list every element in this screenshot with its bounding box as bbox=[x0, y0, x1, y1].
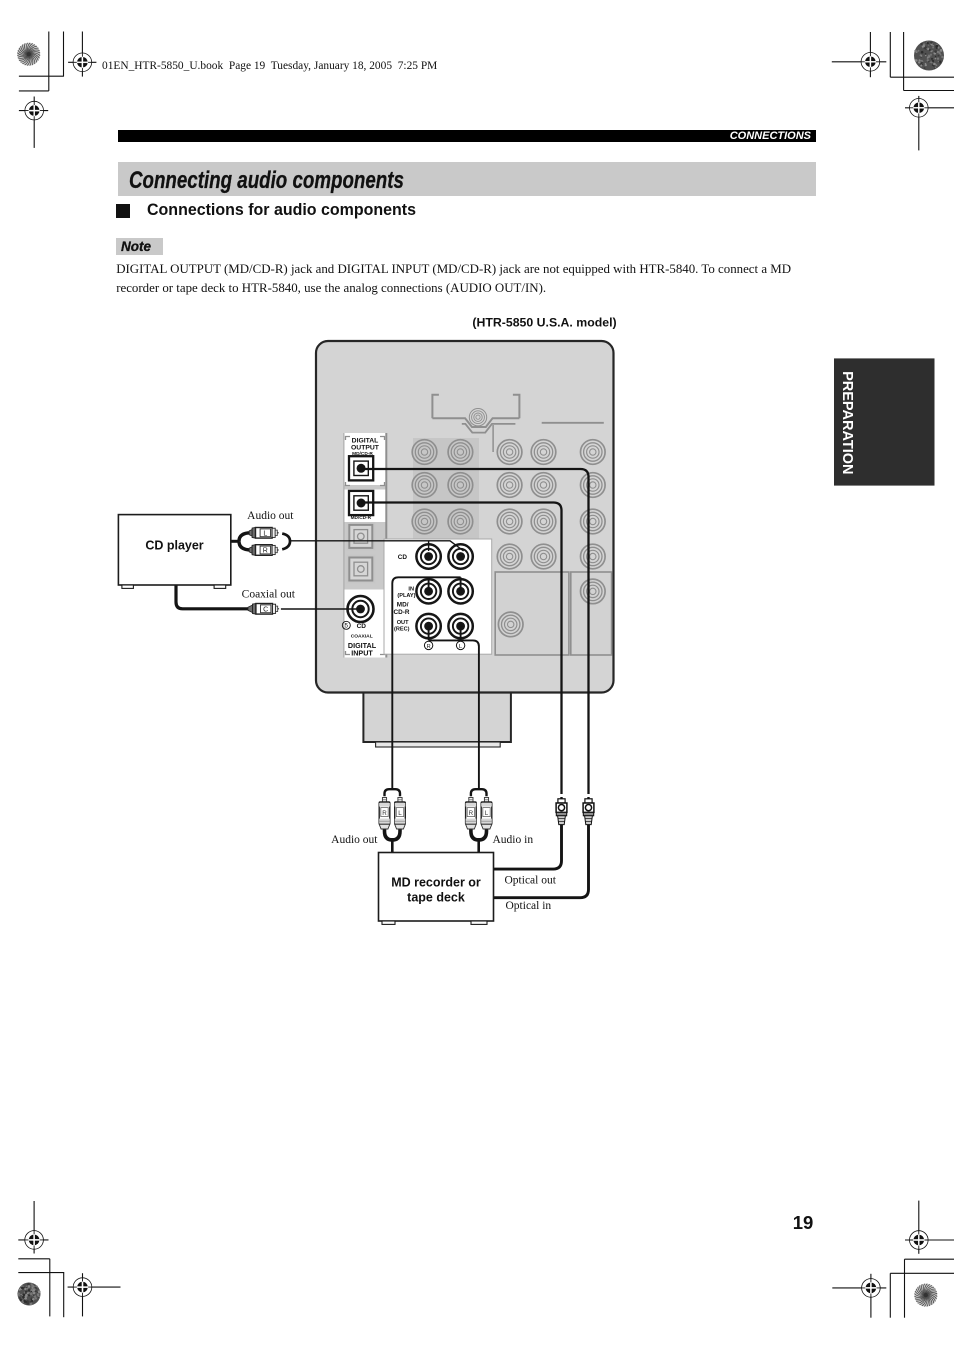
svg-text:C: C bbox=[263, 606, 268, 613]
svg-text:R: R bbox=[263, 548, 268, 555]
svg-text:L: L bbox=[263, 530, 267, 537]
svg-text:CD: CD bbox=[398, 554, 408, 561]
svg-text:L: L bbox=[398, 810, 402, 817]
svg-text:Coaxial out: Coaxial out bbox=[242, 589, 296, 601]
svg-text:IN: IN bbox=[408, 587, 414, 593]
svg-text:L: L bbox=[459, 644, 462, 650]
svg-text:Optical out: Optical out bbox=[505, 875, 557, 887]
svg-text:MD recorder or: MD recorder or bbox=[391, 876, 481, 890]
svg-text:MD/CD-R: MD/CD-R bbox=[351, 515, 372, 520]
svg-text:L: L bbox=[485, 810, 489, 817]
svg-text:R: R bbox=[469, 810, 474, 817]
svg-text:COAXIAL: COAXIAL bbox=[351, 634, 373, 640]
svg-text:MD/: MD/ bbox=[397, 602, 409, 609]
svg-text:Audio out: Audio out bbox=[331, 834, 378, 846]
svg-text:Audio in: Audio in bbox=[493, 834, 534, 846]
svg-text:OUTPUT: OUTPUT bbox=[351, 444, 380, 451]
svg-text:CD: CD bbox=[357, 623, 367, 630]
svg-text:OUT: OUT bbox=[397, 620, 409, 626]
svg-text:CD player: CD player bbox=[145, 539, 203, 553]
svg-text:(HTR-5850 U.S.A. model): (HTR-5850 U.S.A. model) bbox=[472, 316, 616, 330]
svg-text:Optical in: Optical in bbox=[506, 900, 552, 912]
svg-text:INPUT: INPUT bbox=[351, 649, 373, 658]
svg-text:(REC): (REC) bbox=[394, 627, 410, 633]
svg-text:PREPARATION: PREPARATION bbox=[839, 371, 855, 474]
svg-text:(PLAY): (PLAY) bbox=[397, 593, 415, 599]
svg-text:R: R bbox=[382, 810, 387, 817]
svg-text:Audio out: Audio out bbox=[247, 510, 294, 522]
svg-text:tape deck: tape deck bbox=[407, 891, 465, 905]
svg-text:R: R bbox=[427, 644, 431, 650]
svg-text:CD-R: CD-R bbox=[394, 609, 410, 616]
